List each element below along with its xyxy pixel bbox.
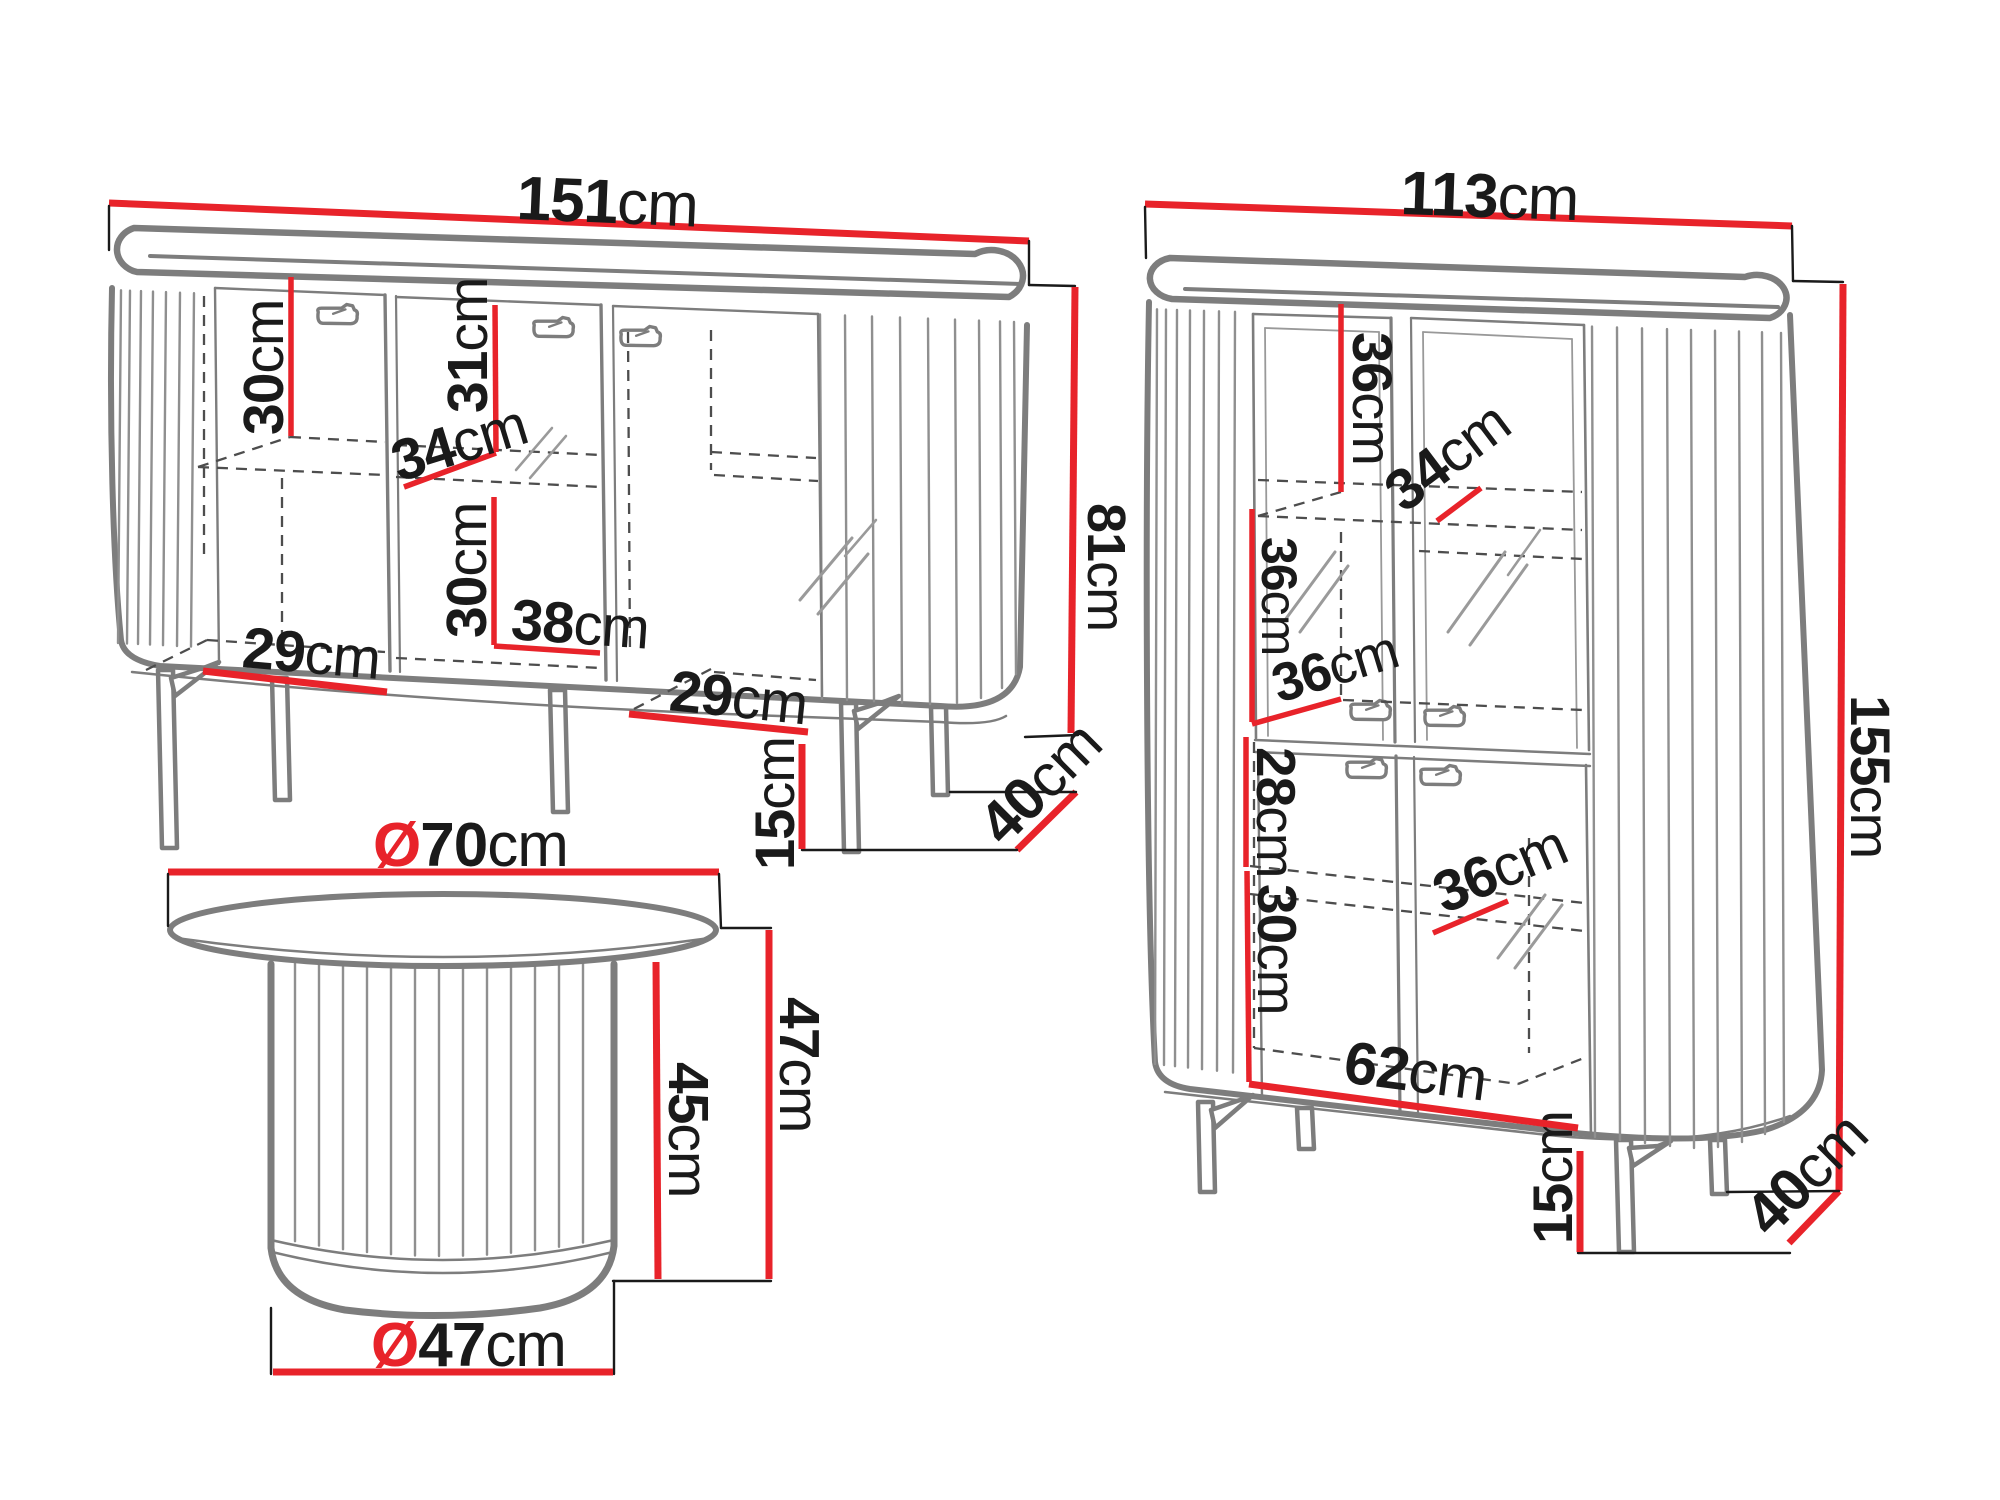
svg-text:15cm: 15cm: [743, 737, 806, 870]
svg-text:30cm: 30cm: [1246, 884, 1308, 1015]
svg-text:28cm: 28cm: [1245, 747, 1307, 878]
svg-text:30cm: 30cm: [232, 300, 296, 435]
svg-text:113cm: 113cm: [1400, 159, 1580, 234]
svg-text:Ø47cm: Ø47cm: [371, 1311, 566, 1380]
svg-text:Ø70cm: Ø70cm: [373, 811, 568, 880]
svg-text:30cm: 30cm: [435, 503, 499, 638]
svg-text:31cm: 31cm: [436, 278, 500, 413]
svg-text:38cm: 38cm: [509, 587, 651, 661]
svg-text:151cm: 151cm: [515, 164, 699, 241]
svg-text:45cm: 45cm: [656, 1062, 720, 1197]
svg-text:81cm: 81cm: [1076, 503, 1136, 631]
svg-text:47cm: 47cm: [767, 997, 831, 1132]
svg-text:29cm: 29cm: [240, 615, 383, 692]
svg-text:36cm: 36cm: [1251, 537, 1307, 655]
svg-text:36cm: 36cm: [1341, 332, 1404, 465]
svg-text:155cm: 155cm: [1839, 695, 1902, 858]
